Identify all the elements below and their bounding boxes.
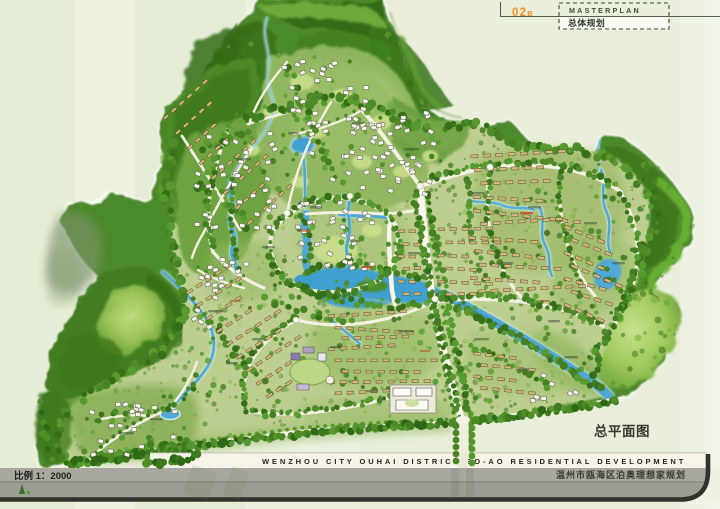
- svg-text:02B: 02B: [512, 7, 534, 19]
- svg-text:总体规划: 总体规划: [568, 17, 605, 28]
- svg-text:温州市瓯海区泊奥理想家规划: 温州市瓯海区泊奥理想家规划: [556, 469, 686, 480]
- svg-text:总平面图: 总平面图: [594, 423, 650, 439]
- svg-text:MASTERPLAN: MASTERPLAN: [569, 6, 641, 15]
- svg-text:比例 1：2000: 比例 1：2000: [14, 470, 72, 482]
